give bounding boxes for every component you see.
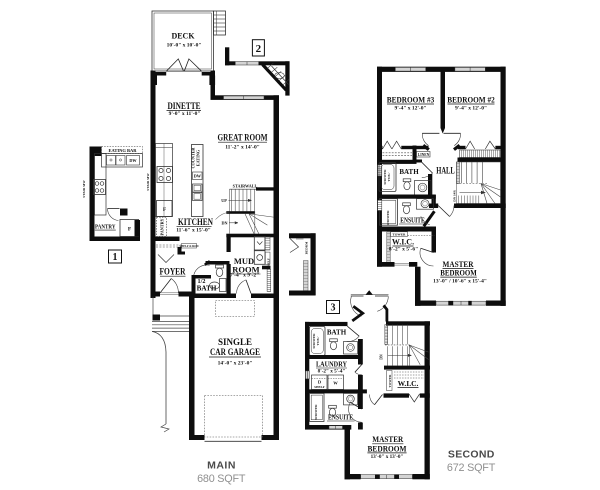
svg-text:TOWER: TOWER [393,233,406,237]
svg-text:13'-0" / 10'-6" x 15'-4": 13'-0" / 10'-6" x 15'-4" [433,278,487,284]
svg-text:2: 2 [256,43,262,55]
svg-text:STAIR MW: STAIR MW [82,180,86,198]
svg-text:1: 1 [113,252,118,263]
svg-text:TOWER: TOWER [388,374,392,387]
svg-text:W.I.C.: W.I.C. [392,238,414,247]
svg-text:BATH: BATH [399,168,419,176]
svg-text:EATING: EATING [196,149,201,166]
svg-text:672 SQFT: 672 SQFT [447,462,496,474]
svg-text:FOYER: FOYER [160,267,186,277]
svg-text:MAIN: MAIN [207,460,236,472]
svg-text:3: 3 [331,302,336,313]
svg-text:SHELF: SHELF [314,385,325,389]
svg-text:BATH: BATH [327,329,347,337]
svg-text:DW: DW [129,158,137,163]
svg-text:MASTER: MASTER [372,435,403,444]
svg-text:11'-2" x 14'-0": 11'-2" x 14'-0" [225,145,260,151]
svg-text:DINETTE: DINETTE [168,101,201,111]
svg-text:PANTRY: PANTRY [160,219,165,236]
svg-text:10'-0" x 10'-0": 10'-0" x 10'-0" [167,43,202,49]
svg-text:SINGLE: SINGLE [218,337,252,347]
svg-text:W: W [333,381,338,386]
svg-text:680 SQFT: 680 SQFT [197,473,246,485]
svg-text:STAIRWALL: STAIRWALL [233,184,258,189]
svg-text:CAR GARAGE: CAR GARAGE [210,347,260,357]
svg-text:HALL: HALL [436,166,455,176]
svg-text:DN 14R: DN 14R [453,190,457,202]
svg-text:BEDROOM #3: BEDROOM #3 [387,96,435,105]
svg-text:LAUNDRY: LAUNDRY [316,361,347,369]
svg-text:DN: DN [221,221,227,226]
svg-text:GREAT ROOM: GREAT ROOM [218,133,268,143]
svg-text:LINEN: LINEN [418,153,430,157]
svg-text:SHOWER: SHOWER [386,210,390,226]
svg-text:8'-2" x 5'-4": 8'-2" x 5'-4" [318,369,346,375]
svg-text:14'-0" x 23'-0": 14'-0" x 23'-0" [218,361,253,367]
svg-text:COUNTER: COUNTER [191,147,196,169]
svg-text:BEDRM: BEDRM [305,241,309,254]
svg-text:7'-4" x 9'-2": 7'-4" x 9'-2" [230,273,259,279]
svg-text:UP: UP [221,198,227,203]
svg-text:DN: DN [380,354,384,360]
svg-text:W.I.C.: W.I.C. [398,379,419,388]
svg-text:KITCHEN: KITCHEN [178,217,213,227]
svg-text:TUB /: TUB / [387,173,391,182]
svg-text:BEDROOM #2: BEDROOM #2 [447,96,495,105]
svg-text:DW: DW [194,174,202,179]
svg-text:BEDROOM: BEDROOM [368,444,407,453]
svg-text:SECOND: SECOND [448,448,495,460]
svg-text:8'-2" x 5'-6": 8'-2" x 5'-6" [389,247,418,253]
svg-text:13'-0" x 13'-0": 13'-0" x 13'-0" [371,454,404,460]
svg-text:9'-4" x 12'-0": 9'-4" x 12'-0" [394,106,426,112]
svg-text:ENSUITE: ENSUITE [328,414,353,422]
svg-text:TUB /: TUB / [316,337,320,346]
svg-text:BEDROOM: BEDROOM [440,269,477,278]
svg-text:STAIR MW: STAIR MW [146,173,150,191]
svg-text:SHELF & ROD: SHELF & ROD [179,245,198,248]
svg-text:SHOWER: SHOWER [383,169,387,185]
svg-text:PANTRY: PANTRY [95,224,116,231]
svg-text:DECK: DECK [171,32,195,41]
svg-text:EATING BAR: EATING BAR [108,148,137,153]
svg-text:BATH: BATH [197,284,217,292]
svg-text:SHOWER: SHOWER [314,404,318,420]
svg-text:SHOWER: SHOWER [312,333,316,349]
svg-text:9'-4" x 12'-0": 9'-4" x 12'-0" [455,106,487,112]
svg-text:11'-6" x 15'-0": 11'-6" x 15'-0" [176,228,211,234]
svg-text:9'-0" x 11'-0": 9'-0" x 11'-0" [169,111,201,117]
